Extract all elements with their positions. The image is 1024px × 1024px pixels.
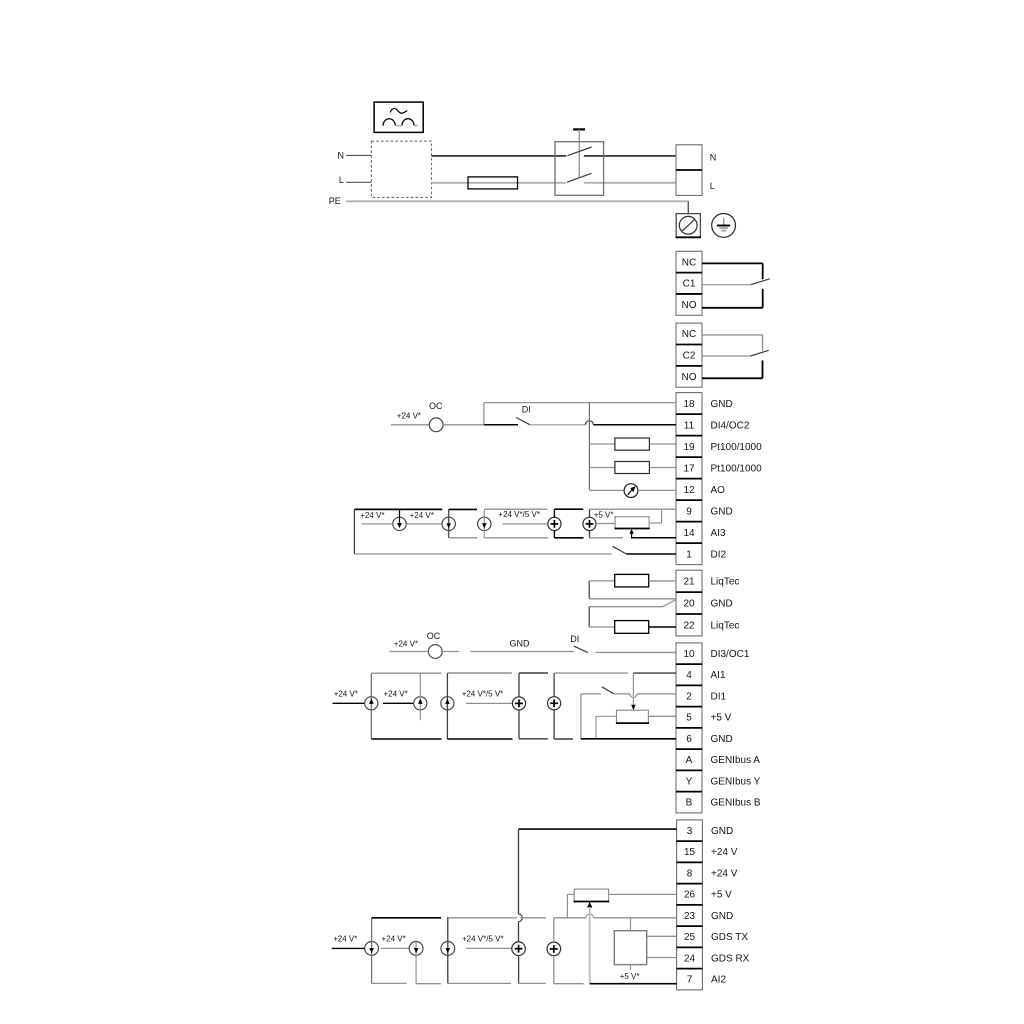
svg-text:GDS TX: GDS TX [711,932,748,943]
svg-text:17: 17 [683,463,695,474]
svg-text:1: 1 [686,549,692,560]
svg-text:Pt100/1000: Pt100/1000 [711,442,763,453]
svg-text:GND: GND [510,638,531,648]
svg-text:AI2: AI2 [711,975,726,986]
svg-text:Pt100/1000: Pt100/1000 [711,463,763,474]
svg-text:GND: GND [711,598,733,609]
svg-text:L: L [339,175,344,185]
svg-text:4: 4 [686,670,692,681]
svg-text:+24 V*: +24 V* [410,511,434,520]
svg-text:+24 V*/5 V*: +24 V*/5 V* [462,934,504,943]
svg-text:7: 7 [687,975,693,986]
svg-text:OC: OC [429,401,443,411]
svg-text:PE: PE [329,196,341,206]
svg-text:+24 V*/5 V*: +24 V*/5 V* [462,689,504,698]
svg-text:DI: DI [570,634,579,644]
svg-text:19: 19 [683,442,695,453]
svg-text:OC: OC [427,631,441,641]
svg-text:GENIbus Y: GENIbus Y [711,776,761,787]
svg-text:15: 15 [684,847,696,858]
svg-text:25: 25 [684,932,696,943]
svg-text:+24 V: +24 V [711,868,738,879]
svg-text:18: 18 [683,399,695,410]
svg-text:DI1: DI1 [711,691,727,702]
svg-text:LiqTec: LiqTec [711,620,740,631]
svg-text:10: 10 [683,649,695,660]
svg-text:+5 V: +5 V [711,890,732,901]
svg-text:DI3/OC1: DI3/OC1 [711,649,750,660]
svg-text:+24 V*: +24 V* [333,935,357,944]
svg-text:3: 3 [687,826,693,837]
svg-text:+24 V*: +24 V* [394,640,418,649]
svg-text:+24 V*: +24 V* [382,935,406,944]
svg-text:+24 V*/5 V*: +24 V*/5 V* [498,510,540,519]
svg-text:Y: Y [686,776,693,787]
svg-text:NO: NO [682,372,697,383]
svg-text:GENIbus A: GENIbus A [711,755,761,766]
svg-text:AO: AO [711,485,726,496]
svg-text:+24 V*: +24 V* [384,689,408,698]
svg-text:N: N [338,151,345,161]
svg-text:GENIbus B: GENIbus B [711,798,761,809]
svg-text:9: 9 [686,506,692,517]
svg-text:L: L [710,181,715,191]
svg-text:N: N [710,153,717,163]
svg-text:GND: GND [711,734,733,745]
svg-text:DI2: DI2 [711,549,727,560]
svg-text:GND: GND [711,911,733,922]
svg-text:C1: C1 [683,279,696,290]
svg-text:DI: DI [522,404,531,414]
svg-text:8: 8 [687,868,693,879]
svg-text:6: 6 [686,734,692,745]
svg-text:+24 V*: +24 V* [360,511,384,520]
svg-text:B: B [686,798,693,809]
svg-text:5: 5 [686,713,692,724]
svg-text:23: 23 [684,911,696,922]
svg-text:+24 V*: +24 V* [397,411,421,420]
svg-text:NC: NC [682,257,696,268]
svg-text:12: 12 [683,485,695,496]
svg-text:NO: NO [682,300,697,311]
svg-text:GND: GND [711,399,733,410]
svg-text:+5 V*: +5 V* [594,510,614,519]
svg-text:AI3: AI3 [711,528,726,539]
svg-text:A: A [686,755,693,766]
svg-text:C2: C2 [683,351,696,362]
svg-text:+5 V*: +5 V* [620,972,640,981]
svg-text:DI4/OC2: DI4/OC2 [711,420,750,431]
svg-text:LiqTec: LiqTec [711,577,740,588]
svg-text:22: 22 [683,620,695,631]
svg-text:+24 V*: +24 V* [334,689,358,698]
svg-text:GND: GND [711,826,733,837]
svg-text:GDS RX: GDS RX [711,953,750,964]
svg-text:14: 14 [683,528,695,539]
svg-text:24: 24 [684,953,696,964]
svg-text:+5 V: +5 V [711,713,732,724]
svg-text:GND: GND [711,506,733,517]
svg-text:AI1: AI1 [711,670,726,681]
svg-text:20: 20 [683,598,695,609]
svg-text:2: 2 [686,691,692,702]
svg-text:26: 26 [684,890,696,901]
svg-text:21: 21 [683,577,695,588]
svg-text:11: 11 [684,420,695,431]
svg-text:+24 V: +24 V [711,847,738,858]
svg-text:NC: NC [682,329,696,340]
